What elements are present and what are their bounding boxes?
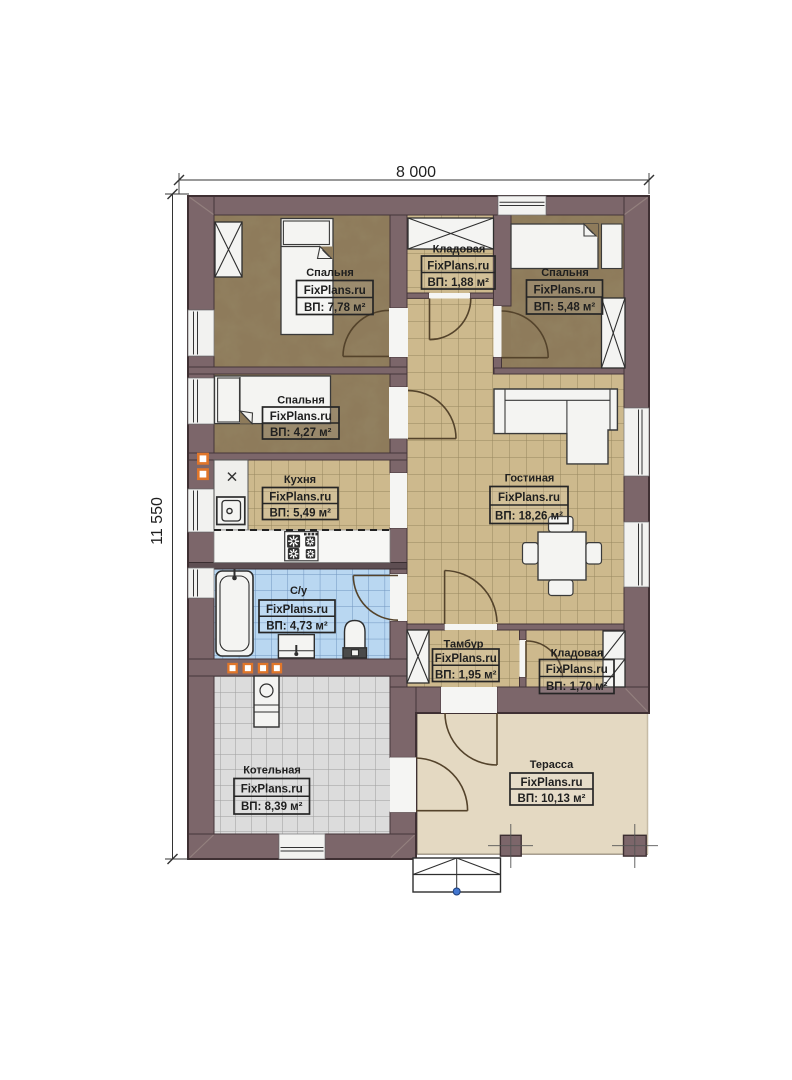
svg-text:ВП: 4,73 м²: ВП: 4,73 м² [266, 620, 328, 632]
svg-text:ВП: 4,27 м²: ВП: 4,27 м² [270, 427, 332, 439]
svg-text:ВП: 7,78 м²: ВП: 7,78 м² [304, 302, 366, 314]
svg-text:ВП: 8,39 м²: ВП: 8,39 м² [241, 801, 303, 813]
svg-text:Кладовая: Кладовая [551, 648, 604, 660]
svg-text:FixPlans.ru: FixPlans.ru [534, 285, 596, 297]
svg-text:FixPlans.ru: FixPlans.ru [498, 492, 560, 504]
svg-text:Спальня: Спальня [541, 267, 589, 279]
svg-text:Спальня: Спальня [277, 395, 325, 407]
svg-text:FixPlans.ru: FixPlans.ru [546, 664, 608, 676]
svg-text:ВП: 5,49 м²: ВП: 5,49 м² [269, 508, 331, 520]
svg-text:FixPlans.ru: FixPlans.ru [435, 653, 497, 665]
svg-text:ВП: 5,48 м²: ВП: 5,48 м² [534, 302, 596, 314]
svg-text:FixPlans.ru: FixPlans.ru [269, 492, 331, 504]
svg-text:FixPlans.ru: FixPlans.ru [304, 285, 366, 297]
svg-text:Кухня: Кухня [284, 474, 316, 486]
svg-text:ВП: 1,95 м²: ВП: 1,95 м² [435, 669, 497, 681]
svg-text:Котельная: Котельная [243, 765, 301, 777]
svg-text:FixPlans.ru: FixPlans.ru [266, 604, 328, 616]
svg-text:Гостиная: Гостиная [505, 473, 555, 485]
svg-text:FixPlans.ru: FixPlans.ru [270, 411, 332, 423]
svg-text:ВП: 10,13 м²: ВП: 10,13 м² [518, 793, 586, 805]
svg-text:8 000: 8 000 [396, 164, 436, 181]
svg-text:ВП: 18,26 м²: ВП: 18,26 м² [495, 510, 563, 522]
svg-text:FixPlans.ru: FixPlans.ru [241, 783, 303, 795]
svg-text:Терасса: Терасса [530, 759, 574, 771]
svg-text:ВП: 1,88 м²: ВП: 1,88 м² [427, 277, 489, 289]
svg-text:FixPlans.ru: FixPlans.ru [427, 260, 489, 272]
svg-text:ВП: 1,70 м²: ВП: 1,70 м² [546, 681, 608, 693]
svg-text:11 550: 11 550 [149, 497, 166, 545]
svg-text:Спальня: Спальня [306, 267, 354, 279]
svg-text:Кладовая: Кладовая [433, 244, 486, 256]
svg-text:С/у: С/у [290, 585, 308, 597]
svg-text:FixPlans.ru: FixPlans.ru [521, 777, 583, 789]
